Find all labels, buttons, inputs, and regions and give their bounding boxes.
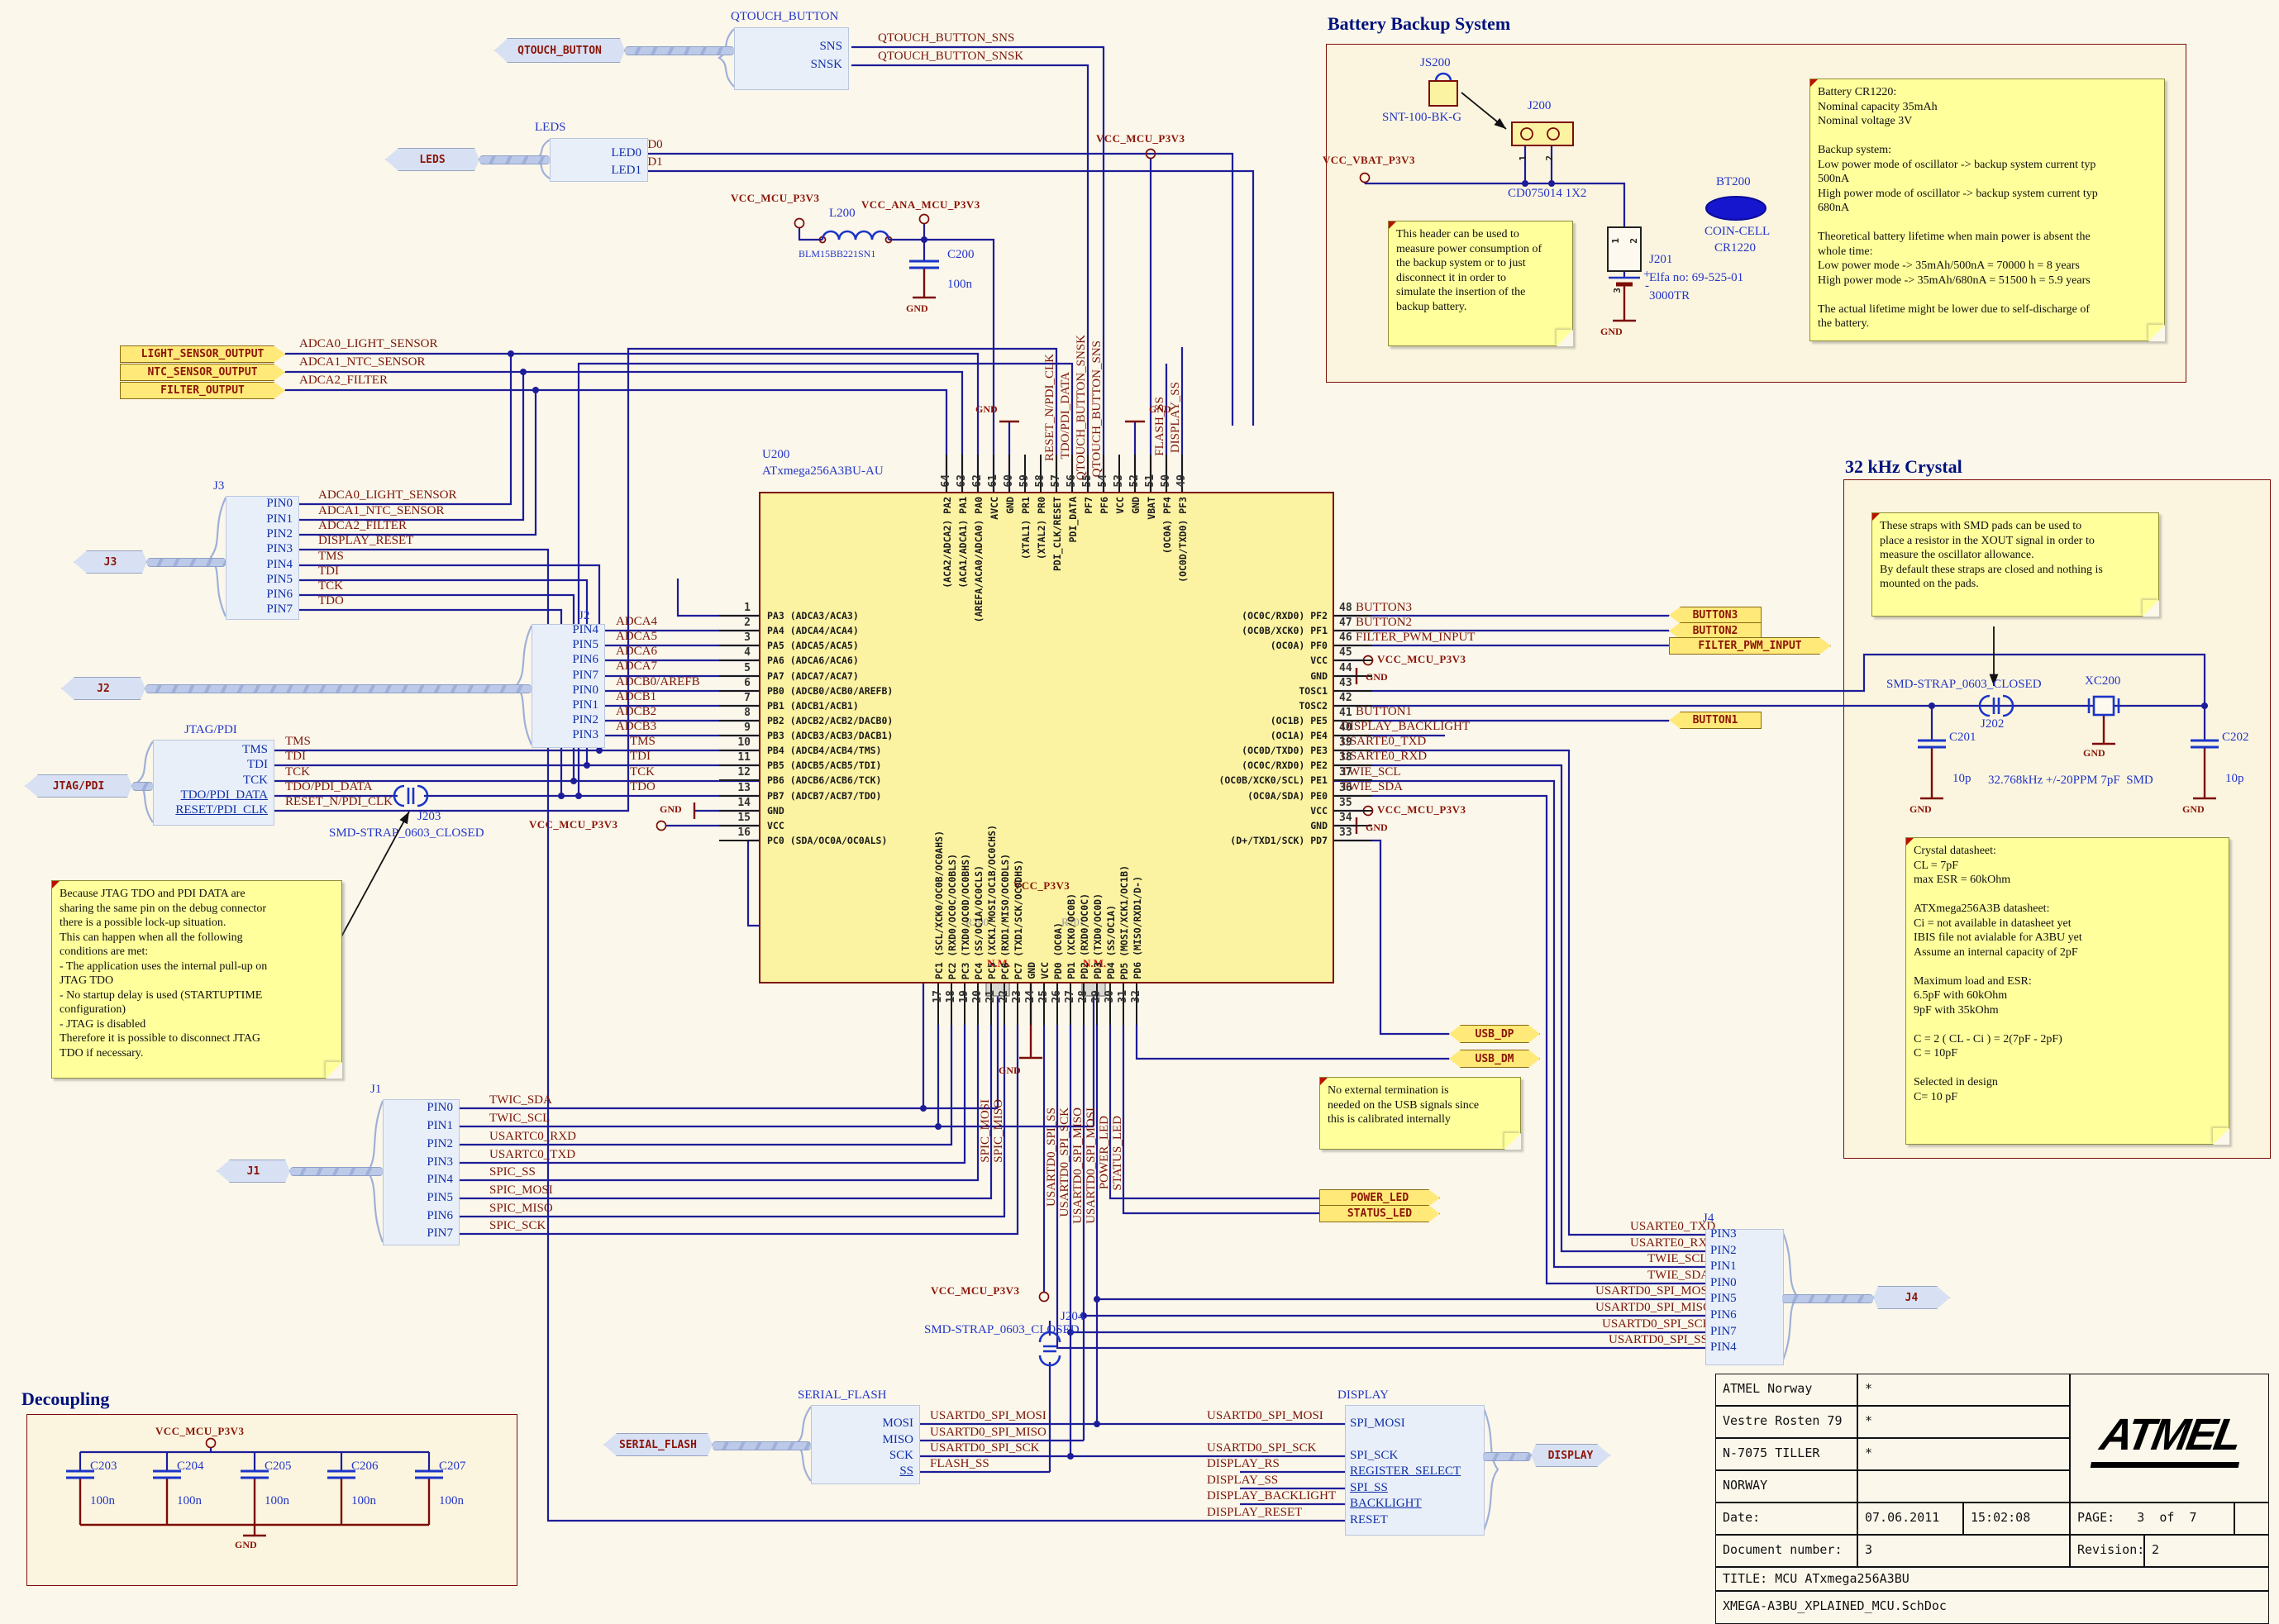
decoupling-section-title: Decoupling — [21, 1388, 109, 1410]
net-label: ADCB2 — [616, 705, 656, 719]
net-label: 10p — [2225, 772, 2244, 786]
net-label: USARTD0_SPI_MISO — [930, 1426, 1047, 1440]
mcu-pin-39: (OC0D/TXD0) PE3 — [1242, 745, 1328, 756]
net-label: 1 — [1610, 238, 1621, 244]
mcu-pin-number-30: 30 — [1104, 990, 1116, 1003]
net-label: 3000TR — [1649, 289, 1690, 303]
flag-filter-pwm-input: FILTER_PWM_INPUT — [1669, 637, 1831, 655]
mcu-pin-number-51: 51 — [1144, 474, 1156, 488]
net-label: XC200 — [2085, 674, 2120, 688]
net-label: CR1220 — [1714, 241, 1756, 255]
net-label: VCC_MCU_P3V3 — [731, 192, 819, 205]
mcu-pin-number-49: 49 — [1175, 474, 1188, 488]
j4-block-title: J4 — [1703, 1212, 1714, 1226]
mcu-pin-number-45: 45 — [1339, 646, 1352, 659]
net-label: USARTD0_SPI_MISO — [1071, 1107, 1085, 1224]
mcu-pin-44: GND — [1310, 670, 1328, 682]
net-label: 100n — [947, 278, 972, 292]
mcu-pin-33: (D+/TXD1/SCK) PD7 — [1230, 835, 1328, 846]
net-label: TWIE_SCL — [1647, 1252, 1708, 1266]
net-label: 10p — [1952, 772, 1971, 786]
net-label: BLM15BB221SN1 — [799, 248, 875, 260]
net-label: USARTE0_TXD — [1341, 735, 1426, 749]
mcu-pin-number-5: 5 — [718, 662, 751, 674]
net-label: DISPLAY_RESET — [1207, 1506, 1302, 1520]
display-block-pointer: DISPLAY — [1531, 1444, 1610, 1467]
net-label: GND — [1909, 803, 1932, 816]
net-label: FLASH_SS — [1153, 397, 1167, 456]
mcu-pin-number-4: 4 — [718, 646, 751, 659]
jtag-block-title: JTAG/PDI — [184, 723, 237, 737]
mcu-pin-number-46: 46 — [1339, 631, 1352, 644]
net-label: GND — [2083, 747, 2105, 760]
j2-block-pin-pin6: PIN6 — [572, 653, 598, 667]
jtag-block-harness — [132, 782, 153, 791]
j2-block-pointer: J2 — [61, 677, 145, 700]
j2-block-pin-pin2: PIN2 — [572, 713, 598, 727]
mcu-pin-50: (OC0A) PF4 — [1161, 497, 1173, 554]
mcu-pin-number-3: 3 — [718, 631, 751, 644]
net-label: 100n — [90, 1494, 115, 1508]
tb-blank — [1857, 1470, 2070, 1503]
jtag-block-pin-reset/pdi_clk: RESET/PDI_CLK — [175, 803, 268, 817]
j2-block-pin-pin1: PIN1 — [572, 698, 598, 712]
net-label: TDI — [318, 564, 339, 579]
net-label: 2 — [1628, 238, 1639, 244]
j3-block-pin-pin7: PIN7 — [266, 602, 293, 617]
net-label: Elfa no: 69-525-01 — [1649, 271, 1743, 285]
net-label: POWER_LED — [1098, 1116, 1112, 1189]
js200-arc — [1436, 74, 1451, 81]
net-label: VCC_VBAT_P3V3 — [1323, 154, 1415, 167]
serial-flash-block-title: SERIAL_FLASH — [798, 1388, 887, 1403]
jtag-block-pointer: JTAG/PDI — [25, 774, 132, 798]
net-label: J204 — [1061, 1310, 1084, 1324]
mcu-pin-52: GND — [1130, 497, 1142, 514]
j3-block-pin-pin1: PIN1 — [266, 512, 293, 526]
mcu-pin-number-16: 16 — [718, 826, 751, 839]
j2-block-pin-pin0: PIN0 — [572, 683, 598, 698]
net-label: SMD-STRAP_0603_CLOSED — [1886, 678, 2042, 692]
tb-country: NORWAY — [1715, 1470, 1857, 1503]
schematic-page: { "title_block":{ "company":"ATMEL Norwa… — [0, 0, 2279, 1603]
mcu-pin-number-8: 8 — [718, 707, 751, 719]
mcu-pin-57: PDI_CLK/RESET — [1051, 497, 1063, 571]
tb-addr1: Vestre Rosten 79 — [1715, 1406, 1857, 1438]
tb-addr2: N-7075 TILLER — [1715, 1438, 1857, 1470]
net-label: QTOUCH_BUTTON_SNSK — [878, 50, 1023, 64]
mcu-pin-number-62: 62 — [971, 474, 984, 488]
net-label: RESET_N/PDI_CLK — [1043, 354, 1057, 461]
mcu-pin-14: GND — [767, 805, 784, 817]
j4-block-pin-pin5: PIN5 — [1710, 1292, 1737, 1306]
mcu-pin-30: PD4 (SS/OC1A) — [1105, 905, 1117, 979]
mcu-pin-number-9: 9 — [718, 722, 751, 734]
mcu-pin-32: PD6 (MISO/RXD1/D-) — [1132, 876, 1143, 979]
net-label: ADCA2_FILTER — [318, 519, 407, 533]
net-label: USARTC0_TXD — [489, 1148, 575, 1162]
net-label: 1 — [1518, 155, 1528, 161]
mcu-pin-24: GND — [1026, 962, 1037, 979]
mcu-pin-29: PD3 (TXD0/OC0D) — [1092, 893, 1104, 979]
tb-company: ATMEL Norway — [1715, 1374, 1857, 1406]
mcu-pin-number-33: 33 — [1339, 826, 1352, 839]
net-label: TCK — [318, 579, 343, 593]
net-label: ADCA5 — [616, 630, 657, 644]
display-block-pin-reset: RESET — [1350, 1513, 1388, 1527]
tb-revision: 2 — [2144, 1535, 2269, 1567]
j1-block-pin-pin2: PIN2 — [427, 1137, 453, 1151]
net-label: 3 — [1612, 288, 1623, 293]
j1-block-pointer: J1 — [217, 1160, 290, 1183]
net-label: C203 — [90, 1460, 117, 1474]
j2-block-harness — [145, 684, 532, 693]
mcu-pin-49: (OC0D/TXD0) PF3 — [1177, 497, 1189, 583]
j1-block-pin-pin4: PIN4 — [427, 1173, 453, 1187]
mcu-pin-40: (OC1A) PE4 — [1271, 730, 1328, 741]
note-battery-header: This header can be used to measure power… — [1388, 221, 1573, 346]
net-label: USARTD0_SPI_SCK — [1602, 1317, 1711, 1331]
net-label: SPIC_MISO — [489, 1202, 553, 1216]
mcu-pin-12: PB6 (ADCB6/ACB6/TCK) — [767, 774, 881, 786]
mcu-pin-27: PD1 (XCK0/OC0B) — [1066, 893, 1077, 979]
display-block-pin-spi_mosi: SPI_MOSI — [1350, 1417, 1405, 1431]
mcu-pin-13: PB7 (ADCB7/ACB7/TDO) — [767, 790, 881, 802]
display-block-harness — [1483, 1452, 1531, 1461]
mcu-pin-11: PB5 (ADCB5/ACB5/TDI) — [767, 760, 881, 771]
mcu-pin-number-60: 60 — [1003, 474, 1015, 488]
mcu-pin-26: PD0 (OC0A) — [1052, 922, 1064, 979]
bt200-coin-cell — [1706, 197, 1766, 220]
serial-flash-block-pin-mosi: MOSI — [882, 1417, 913, 1431]
mcu-part: ATxmega256A3BU-AU — [762, 464, 884, 479]
mcu-pin-number-43: 43 — [1339, 677, 1352, 689]
net-label: DISPLAY_BACKLIGHT — [1207, 1489, 1336, 1503]
mcu-pin-8: PB2 (ADCB2/ACB2/DACB0) — [767, 715, 893, 726]
net-label: TCK — [630, 765, 655, 779]
net-label: TDO/PDI_DATA — [285, 780, 372, 794]
net-label: DISPLAY_RESET — [318, 534, 413, 548]
mcu-pin-number-61: 61 — [987, 474, 999, 488]
j1-block-harness — [290, 1167, 383, 1176]
mcu-pin-number-39: 39 — [1339, 736, 1352, 749]
note-usb: No external termination is needed on the… — [1319, 1077, 1521, 1150]
net-label: GND — [999, 1064, 1021, 1077]
j3-block-pin-pin2: PIN2 — [266, 527, 293, 541]
net-label: BUTTON3 — [1356, 601, 1412, 615]
net-label: TMS — [285, 735, 311, 749]
net-label: J201 — [1649, 253, 1672, 267]
mcu-pin-number-1: 1 — [718, 602, 751, 614]
net-label: BT200 — [1716, 175, 1751, 189]
capacitor-c202 — [2191, 741, 2219, 747]
tb-doc-label: Document number: — [1715, 1535, 1857, 1567]
mcu-pin-42: TOSC2 — [1299, 700, 1328, 712]
net-label: C205 — [265, 1460, 292, 1474]
mcu-pin-number-26: 26 — [1051, 990, 1063, 1003]
mcu-pin-number-53: 53 — [1113, 474, 1125, 488]
j4-block-pin-pin1: PIN1 — [1710, 1260, 1737, 1274]
mcu-pin-4: PA6 (ADCA6/ACA6) — [767, 655, 859, 666]
note-crystal-datasheet: Crystal datasheet: CL = 7pF max ESR = 60… — [1905, 837, 2229, 1145]
net-label: C200 — [947, 248, 975, 262]
net-label: STATUS_LED — [1111, 1116, 1125, 1190]
flag-button1: BUTTON1 — [1669, 712, 1762, 729]
jtag-block-pin-tck: TCK — [243, 774, 268, 788]
mcu-pin-19: PC3 (TXD0/OC0D/OC0BHS) — [960, 854, 971, 979]
mcu-pin-number-64: 64 — [940, 474, 952, 488]
mcu-pin-34: GND — [1310, 820, 1328, 831]
j4-block-pin-pin0: PIN0 — [1710, 1276, 1737, 1290]
net-label: TMS — [630, 735, 656, 749]
mcu-pin-61: AVCC — [989, 497, 1000, 520]
mcu-pin-number-29: 29 — [1090, 990, 1103, 1003]
mcu-pin-number-13: 13 — [718, 782, 751, 794]
net-label: C206 — [351, 1460, 379, 1474]
net-label: USARTD0_SPI_MOSI — [1595, 1284, 1712, 1298]
net-label: ADCB1 — [616, 690, 656, 704]
net-label: USARTD0_SPI_MOSI — [1207, 1409, 1323, 1423]
mcu-ref: U200 — [762, 448, 789, 462]
net-label: FLASH_SS — [930, 1457, 989, 1471]
net-label: USARTD0_SPI_SCK — [1058, 1107, 1072, 1217]
jtag-block-pin-tdo/pdi_data: TDO/PDI_DATA — [181, 788, 268, 802]
j3-block-harness — [147, 558, 226, 567]
net-label: ADCA0_LIGHT_SENSOR — [318, 488, 457, 502]
mcu-pin-number-6: 6 — [718, 677, 751, 689]
net-label: ADCA4 — [616, 615, 657, 629]
mcu-pin-number-58: 58 — [1034, 474, 1047, 488]
net-label: C207 — [439, 1460, 466, 1474]
mcu-pin-number-25: 25 — [1037, 990, 1050, 1003]
net-label: VCC_ANA_MCU_P3V3 — [861, 198, 980, 212]
display-block-pin-spi_ss: SPI_SS — [1350, 1481, 1388, 1495]
mcu-pin-number-15: 15 — [718, 812, 751, 824]
net-label: VCC_MCU_P3V3 — [1096, 132, 1185, 145]
atmel-logo: ATMEL — [2070, 1374, 2269, 1503]
mcu-pin-38: (OC0C/RXD0) PE2 — [1242, 760, 1328, 771]
net-label: USARTD0_SPI_SCK — [930, 1441, 1039, 1455]
mcu-pin-58: (XTAL2) PR0 — [1036, 497, 1047, 560]
mcu-pin-number-54: 54 — [1097, 474, 1109, 488]
net-label: SPIC_MOSI — [489, 1183, 553, 1198]
display-block-pin-backlight: BACKLIGHT — [1350, 1497, 1422, 1511]
j1-block-title: J1 — [370, 1083, 381, 1097]
mcu-pin-21: PC5 (XCK1/MOSI/OC1B/OC0CHS) — [986, 825, 998, 979]
serial-flash-block-harness — [713, 1441, 811, 1450]
net-label: USARTD0_SPI_MOSI — [930, 1409, 1047, 1423]
j3-block-pin-pin0: PIN0 — [266, 497, 293, 511]
net-label: USARTD0_SPI_SS — [1045, 1107, 1059, 1207]
mcu-pin-17: PC1 (SCL/XCK0/OC0B/OC0AHS) — [933, 831, 945, 979]
flag-usb-dp: USB_DP — [1449, 1025, 1540, 1043]
mcu-pin-25: VCC — [1039, 962, 1051, 979]
net-label: SMD-STRAP_0603_CLOSED — [329, 826, 484, 841]
mcu-pin-number-38: 38 — [1339, 751, 1352, 764]
inductor-l200 — [822, 231, 889, 240]
mcu-pin-3: PA5 (ADCA5/ACA5) — [767, 640, 859, 651]
mcu-pin-number-52: 52 — [1128, 474, 1141, 488]
j2-block-pin-pin5: PIN5 — [572, 638, 598, 652]
display-block-pin-spi_sck: SPI_SCK — [1350, 1449, 1398, 1463]
net-label: 100n — [439, 1494, 464, 1508]
net-label: J200 — [1528, 99, 1551, 113]
decoupling-capacitors — [66, 1471, 443, 1478]
j201-body — [1608, 227, 1641, 271]
net-label: ADCB3 — [616, 720, 656, 734]
net-label: GND — [975, 403, 998, 416]
mcu-pin-37: (OC0B/XCK0/SCL) PE1 — [1218, 774, 1328, 786]
net-label: GND — [1600, 326, 1623, 338]
net-label: USARTD0_SPI_MOSI — [1085, 1107, 1099, 1224]
net-label: J203 — [417, 810, 441, 824]
net-label: VCC_MCU_P3V3 — [1377, 653, 1466, 666]
mcu-pin-number-40: 40 — [1339, 722, 1352, 734]
net-label: BUTTON2 — [1356, 616, 1412, 630]
serial-flash-block-pin-miso: MISO — [882, 1433, 913, 1447]
note-battery-info: Battery CR1220: Nominal capacity 35mAh N… — [1809, 79, 2165, 341]
mcu-pin-64: (ACA2/ADCA2) PA2 — [942, 497, 953, 588]
mcu-pin-number-17: 17 — [932, 990, 944, 1003]
mcu-pin-28: PD2 (RXD0/OC0C) — [1079, 893, 1090, 979]
mcu-pin-number-32: 32 — [1130, 990, 1142, 1003]
mcu-pin-10: PB4 (ADCB4/ACB4/TMS) — [767, 745, 881, 756]
net-label: ADCA6 — [616, 645, 657, 659]
j4-block-pointer: J4 — [1873, 1286, 1950, 1309]
leds-block-pin-led0: LED0 — [611, 146, 641, 160]
leds-block-title: LEDS — [535, 121, 566, 135]
mcu-pin-number-24: 24 — [1024, 990, 1037, 1003]
display-block-title: DISPLAY — [1337, 1388, 1389, 1403]
net-label: SPIC_MOSI — [979, 1099, 993, 1163]
tb-time: 15:02:08 — [1963, 1503, 2070, 1535]
mcu-pin-41: (OC1B) PE5 — [1271, 715, 1328, 726]
net-label: USARTD0_SPI_SCK — [1207, 1441, 1316, 1455]
net-label: ADCA2_FILTER — [299, 374, 388, 388]
mcu-pin-48: (OC0C/RXD0) PF2 — [1242, 610, 1328, 622]
net-label: ADCA1_NTC_SENSOR — [318, 504, 445, 518]
mcu-pin-number-12: 12 — [718, 766, 751, 779]
net-label: CD075014 1X2 — [1508, 187, 1586, 201]
mcu-pin-63: (ACA1/ADCA1) PA1 — [957, 497, 969, 588]
mcu-pin-59: (XTAL1) PR1 — [1020, 497, 1032, 560]
tb-star1: * — [1857, 1374, 2070, 1406]
qtouch-block-pin-sns: SNS — [819, 40, 842, 54]
mcu-pin-54: PF6 — [1099, 497, 1110, 514]
mcu-pin-number-42: 42 — [1339, 692, 1352, 704]
mcu-pin-number-23: 23 — [1011, 990, 1023, 1003]
capacitor-c201 — [1918, 741, 1946, 747]
mcu-pin-15: VCC — [767, 820, 784, 831]
net-label: C204 — [177, 1460, 204, 1474]
net-label: TWIC_SDA — [489, 1093, 552, 1107]
net-label: FILTER_PWM_INPUT — [1356, 631, 1475, 645]
net-label: TCK — [285, 765, 310, 779]
tb-page: PAGE: 3 of 7 — [2070, 1503, 2234, 1535]
leds-block-harness — [479, 155, 550, 164]
mcu-pin-number-31: 31 — [1117, 990, 1129, 1003]
mcu-pin-60: GND — [1004, 497, 1016, 514]
mcu-pin-1: PA3 (ADCA3/ACA3) — [767, 610, 859, 622]
mcu-pin-16: PC0 (SDA/OC0A/OC0ALS) — [767, 835, 887, 846]
mcu-pin-35: VCC — [1310, 805, 1328, 817]
j4-block-harness — [1782, 1294, 1873, 1303]
mcu-pin-number-59: 59 — [1018, 474, 1031, 488]
net-label: QTOUCH_BUTTON_SNS — [878, 31, 1014, 45]
net-label: DISPLAY_SS — [1169, 382, 1183, 453]
mcu-pin-56: PDI_DATA — [1067, 497, 1079, 542]
mcu-pin-number-10: 10 — [718, 736, 751, 749]
j1-block-pin-pin3: PIN3 — [427, 1155, 453, 1169]
mcu-pin-number-18: 18 — [945, 990, 957, 1003]
tb-rev-label: Revision: — [2070, 1535, 2144, 1567]
mcu-pin-number-48: 48 — [1339, 602, 1352, 614]
mcu-pin-31: PD5 (MOSI/XCK1/OC1B) — [1118, 865, 1130, 979]
tb-file: XMEGA-A3BU_XPLAINED_MCU.SchDoc — [1715, 1591, 2269, 1624]
mcu-pin-46: (OC0A) PF0 — [1271, 640, 1328, 651]
leds-block-pin-led1: LED1 — [611, 164, 641, 178]
battery-section-title: Battery Backup System — [1328, 13, 1510, 35]
net-label: 100n — [265, 1494, 289, 1508]
j1-block-pin-pin0: PIN0 — [427, 1101, 453, 1115]
crystal-xc200 — [2094, 697, 2114, 715]
flag-ntc-sensor-output: NTC_SENSOR_OUTPUT — [120, 364, 285, 381]
crystal-section-title: 32 kHz Crystal — [1845, 456, 1962, 478]
j1-block-pin-pin5: PIN5 — [427, 1191, 453, 1205]
display-block-pin-register_select: REGISTER_SELECT — [1350, 1464, 1461, 1479]
serial-flash-block-pin-sck: SCK — [889, 1449, 913, 1463]
j3-block-pin-pin5: PIN5 — [266, 573, 293, 587]
net-label: C201 — [1949, 731, 1976, 745]
net-label: SNT-100-BK-G — [1382, 111, 1461, 125]
flag-usb-dm: USB_DM — [1449, 1050, 1540, 1068]
net-label: USARTE0_RXD — [1630, 1236, 1716, 1250]
net-label: COIN-CELL — [1704, 225, 1770, 239]
js200-body — [1429, 81, 1457, 106]
mcu-pin-number-44: 44 — [1339, 662, 1352, 674]
tb-title: TITLE: MCU ATxmega256A3BU — [1715, 1567, 2269, 1591]
mcu-pin-number-2: 2 — [718, 617, 751, 629]
mcu-pin-number-21: 21 — [985, 990, 997, 1003]
tb-star3: * — [1857, 1438, 2070, 1470]
net-label: DISPLAY_RS — [1207, 1457, 1280, 1471]
flag-button2: BUTTON2 — [1669, 622, 1762, 640]
net-label: VCC_MCU_P3V3 — [529, 818, 617, 831]
tb-date: 07.06.2011 — [1857, 1503, 1963, 1535]
net-label: TDO — [318, 594, 344, 608]
net-label: J202 — [1981, 717, 2004, 731]
mcu-pin-number-22: 22 — [998, 990, 1010, 1003]
flag-power-led: POWER_LED — [1319, 1189, 1440, 1207]
net-label: USARTD0_SPI_MISO — [1595, 1301, 1712, 1315]
net-label: SPIC_SCK — [489, 1219, 546, 1233]
mcu-pin-18: PC2 (RXD0/OC0C/OC0BLS) — [946, 854, 958, 979]
mcu-pin-number-27: 27 — [1064, 990, 1076, 1003]
tb-star2: * — [1857, 1406, 2070, 1438]
mcu-pin-number-14: 14 — [718, 797, 751, 809]
note-jtag: Because JTAG TDO and PDI DATA are sharin… — [51, 880, 342, 1079]
flag-light-sensor-output: LIGHT_SENSOR_OUTPUT — [120, 345, 285, 363]
net-label: GND — [2182, 803, 2205, 816]
mcu-pin-7: PB1 (ADCB1/ACB1) — [767, 700, 859, 712]
mcu-pin-number-50: 50 — [1160, 474, 1172, 488]
net-label: TDO/PDI_DATA — [1059, 372, 1073, 459]
j3-block-pin-pin4: PIN4 — [266, 558, 293, 572]
capacitor-c200 — [909, 261, 939, 268]
net-label: ADCB0/AREFB — [616, 675, 700, 689]
smd-strap-j203 — [394, 786, 427, 806]
mcu-pin-5: PA7 (ADCA7/ACA7) — [767, 670, 859, 682]
